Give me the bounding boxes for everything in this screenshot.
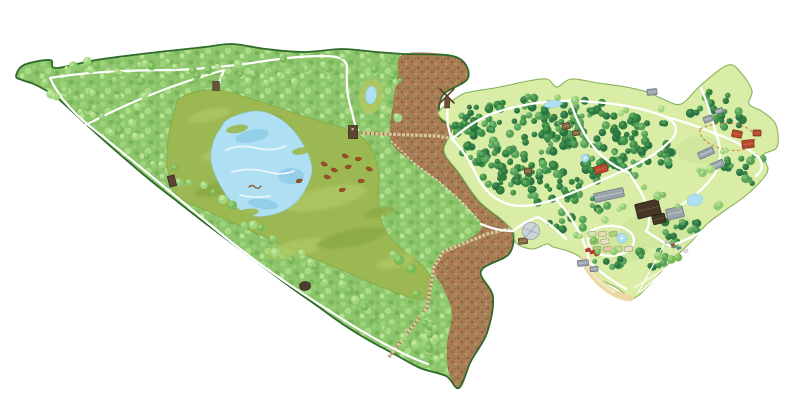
building xyxy=(525,168,532,174)
building xyxy=(577,260,588,267)
observation-tower-icon xyxy=(349,126,358,139)
building xyxy=(647,89,657,96)
bird-hide-icon xyxy=(300,282,311,291)
bird-tower-icon xyxy=(213,82,220,91)
car-icon xyxy=(684,249,689,253)
building xyxy=(598,231,607,237)
building xyxy=(624,246,633,252)
building xyxy=(609,231,618,237)
building xyxy=(518,238,527,245)
building xyxy=(590,266,598,272)
building xyxy=(562,122,571,129)
park-map-illustration xyxy=(0,0,800,420)
building xyxy=(588,231,597,237)
building xyxy=(742,139,755,148)
map-canvas xyxy=(0,0,800,420)
building xyxy=(601,238,610,244)
building xyxy=(753,130,761,136)
building xyxy=(572,130,580,136)
